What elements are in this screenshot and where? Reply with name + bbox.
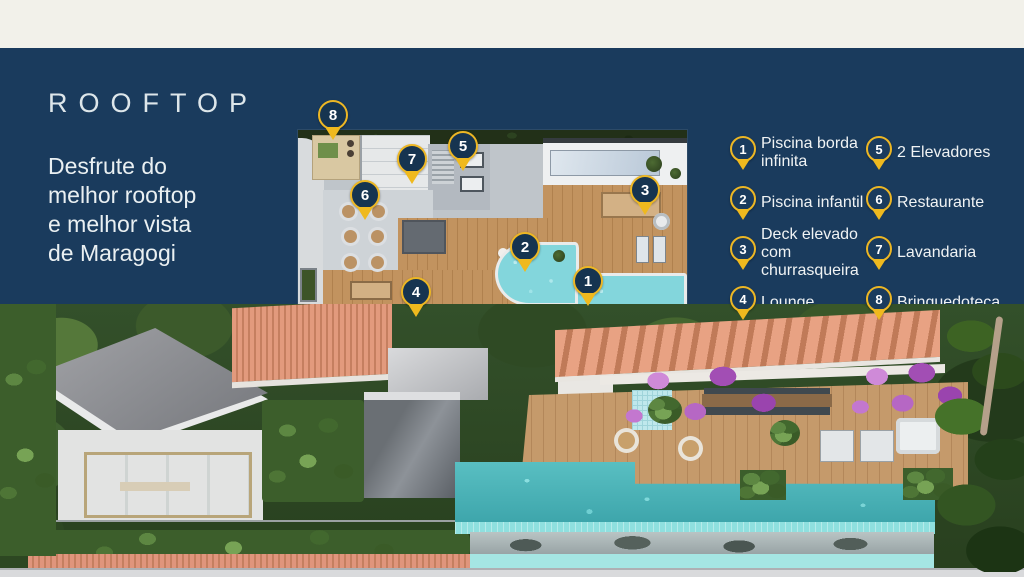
plan-equipment xyxy=(347,140,354,147)
legend-item-3: 3 Deck elevado com churrasqueira xyxy=(730,228,866,278)
legend-label: Piscina infantil xyxy=(761,194,863,212)
map-pin-8: 8 xyxy=(318,100,348,140)
pool-tile-lower-band xyxy=(470,554,934,569)
map-pin-1-number: 1 xyxy=(573,266,603,296)
pin-tail xyxy=(408,304,424,317)
pin-tail xyxy=(357,207,373,220)
plan-bar-counter xyxy=(402,220,446,254)
pin-tail xyxy=(325,127,341,140)
legend-pin-icon: 1 xyxy=(730,136,756,170)
legend-pin-icon: 2 xyxy=(730,186,756,220)
plan-equipment xyxy=(347,150,354,157)
page-subtitle: Desfrute do melhor rooftop e melhor vist… xyxy=(48,152,278,268)
pin-tail xyxy=(455,158,471,171)
plan-dining-table xyxy=(350,281,392,300)
legend-pin-icon: 3 xyxy=(730,236,756,270)
pool-planter xyxy=(740,470,786,500)
plan-rug xyxy=(318,143,338,158)
building-render-photo xyxy=(0,304,1024,577)
map-pin-6-number: 6 xyxy=(350,180,380,210)
pin-tail xyxy=(637,202,653,215)
plan-tree xyxy=(646,156,662,172)
plan-planter xyxy=(300,268,317,302)
map-pin-5-number: 5 xyxy=(448,131,478,161)
pin-tail xyxy=(872,209,886,220)
pin-tail xyxy=(872,259,886,270)
legend-label: Lavandaria xyxy=(897,244,976,262)
outdoor-round-table xyxy=(682,440,699,457)
legend-item-1: 1 Piscina borda infinita xyxy=(730,128,866,178)
map-pin-3: 3 xyxy=(630,175,660,215)
top-cream-bar xyxy=(0,0,1024,48)
pin-tail xyxy=(736,259,750,270)
plan-round-table xyxy=(344,230,357,243)
pin-tail xyxy=(736,309,750,320)
pin-tail xyxy=(872,159,886,170)
page-title: ROOFTOP xyxy=(48,88,278,119)
glass-volume xyxy=(364,392,460,498)
plan-elevator-2 xyxy=(460,176,484,192)
legend-item-2: 2 Piscina infantil xyxy=(730,178,866,228)
palm-tree-cluster xyxy=(928,304,1024,572)
legend-label: 2 Elevadores xyxy=(897,144,990,162)
legend-pin-icon: 4 xyxy=(730,286,756,320)
pin-tail xyxy=(736,159,750,170)
legend-pin-icon: 8 xyxy=(866,286,892,320)
legend-label: Piscina borda infinita xyxy=(761,135,866,171)
pin-tail xyxy=(404,171,420,184)
plan-tree xyxy=(670,168,681,179)
building-base-wall xyxy=(0,568,1024,577)
plan-round-table xyxy=(344,256,357,269)
legend-item-7: 7 Lavandaria xyxy=(866,228,1022,278)
pin-tail xyxy=(872,309,886,320)
intro-block: ROOFTOP Desfrute do melhor rooftop e mel… xyxy=(48,88,278,268)
header-panel: ROOFTOP Desfrute do melhor rooftop e mel… xyxy=(0,48,1024,304)
sun-loungers xyxy=(820,430,894,462)
legend-label: Deck elevado com churrasqueira xyxy=(761,226,866,280)
map-pin-8-number: 8 xyxy=(318,100,348,130)
map-pin-7: 7 xyxy=(397,144,427,184)
legend-pin-icon: 7 xyxy=(866,236,892,270)
vertical-garden-wall xyxy=(262,400,364,502)
legend-label: Restaurante xyxy=(897,194,984,212)
pin-tail xyxy=(580,293,596,306)
plan-tree xyxy=(553,250,565,262)
jungle-left-edge xyxy=(0,304,56,556)
pin-tail xyxy=(517,259,533,272)
plan-daybed xyxy=(653,213,670,230)
deck-railing xyxy=(30,520,470,522)
legend-item-5: 5 2 Elevadores xyxy=(866,128,1022,178)
map-pin-2: 2 xyxy=(510,232,540,272)
map-pin-1: 1 xyxy=(573,266,603,306)
interior-table xyxy=(120,482,190,491)
plan-skylight xyxy=(550,150,660,176)
pin-tail xyxy=(736,209,750,220)
bougainvillea xyxy=(612,350,797,438)
glass-facade-reflection xyxy=(470,532,934,556)
map-pin-4-number: 4 xyxy=(401,277,431,307)
map-pin-4: 4 xyxy=(401,277,431,317)
legend-item-6: 6 Restaurante xyxy=(866,178,1022,228)
plan-round-table xyxy=(371,230,384,243)
plan-pool-loungers xyxy=(636,236,666,263)
map-pin-2-number: 2 xyxy=(510,232,540,262)
map-pin-3-number: 3 xyxy=(630,175,660,205)
terracotta-slat-structure xyxy=(232,304,392,388)
legend-pin-icon: 5 xyxy=(866,136,892,170)
legend: 1 Piscina borda infinita 2 Piscina infan… xyxy=(730,128,1022,328)
legend-pin-icon: 6 xyxy=(866,186,892,220)
plan-brinquedoteca-room xyxy=(312,135,360,180)
map-pin-5: 5 xyxy=(448,131,478,171)
plan-round-table xyxy=(371,256,384,269)
map-pin-7-number: 7 xyxy=(397,144,427,174)
map-pin-6: 6 xyxy=(350,180,380,220)
